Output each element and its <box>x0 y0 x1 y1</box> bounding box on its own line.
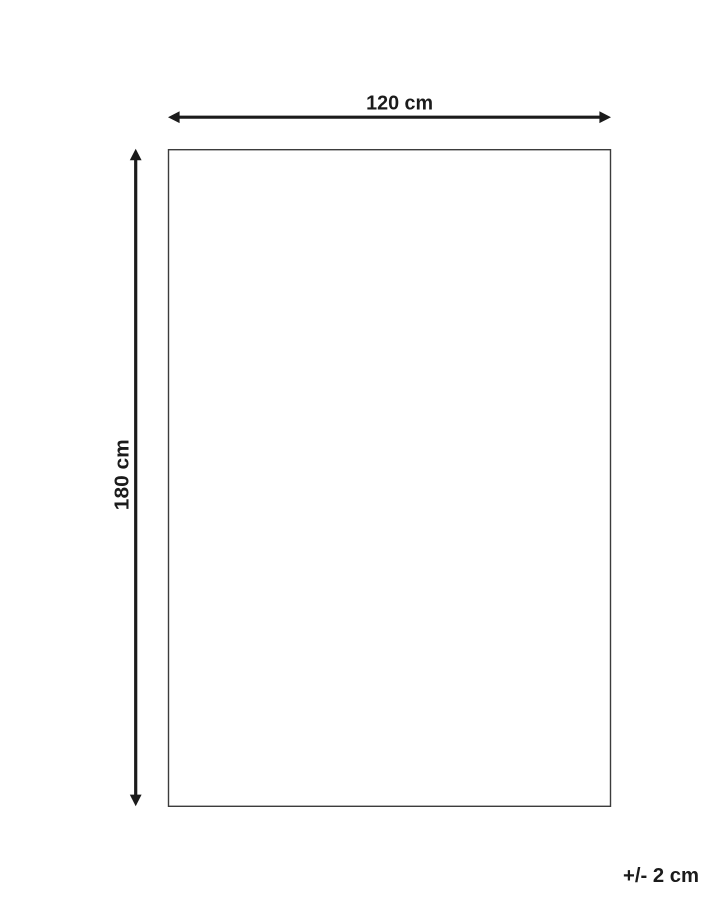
svg-text:120 cm: 120 cm <box>366 91 433 114</box>
svg-text:180 cm: 180 cm <box>110 439 133 510</box>
svg-text:+/- 2 cm: +/- 2 cm <box>623 864 699 887</box>
